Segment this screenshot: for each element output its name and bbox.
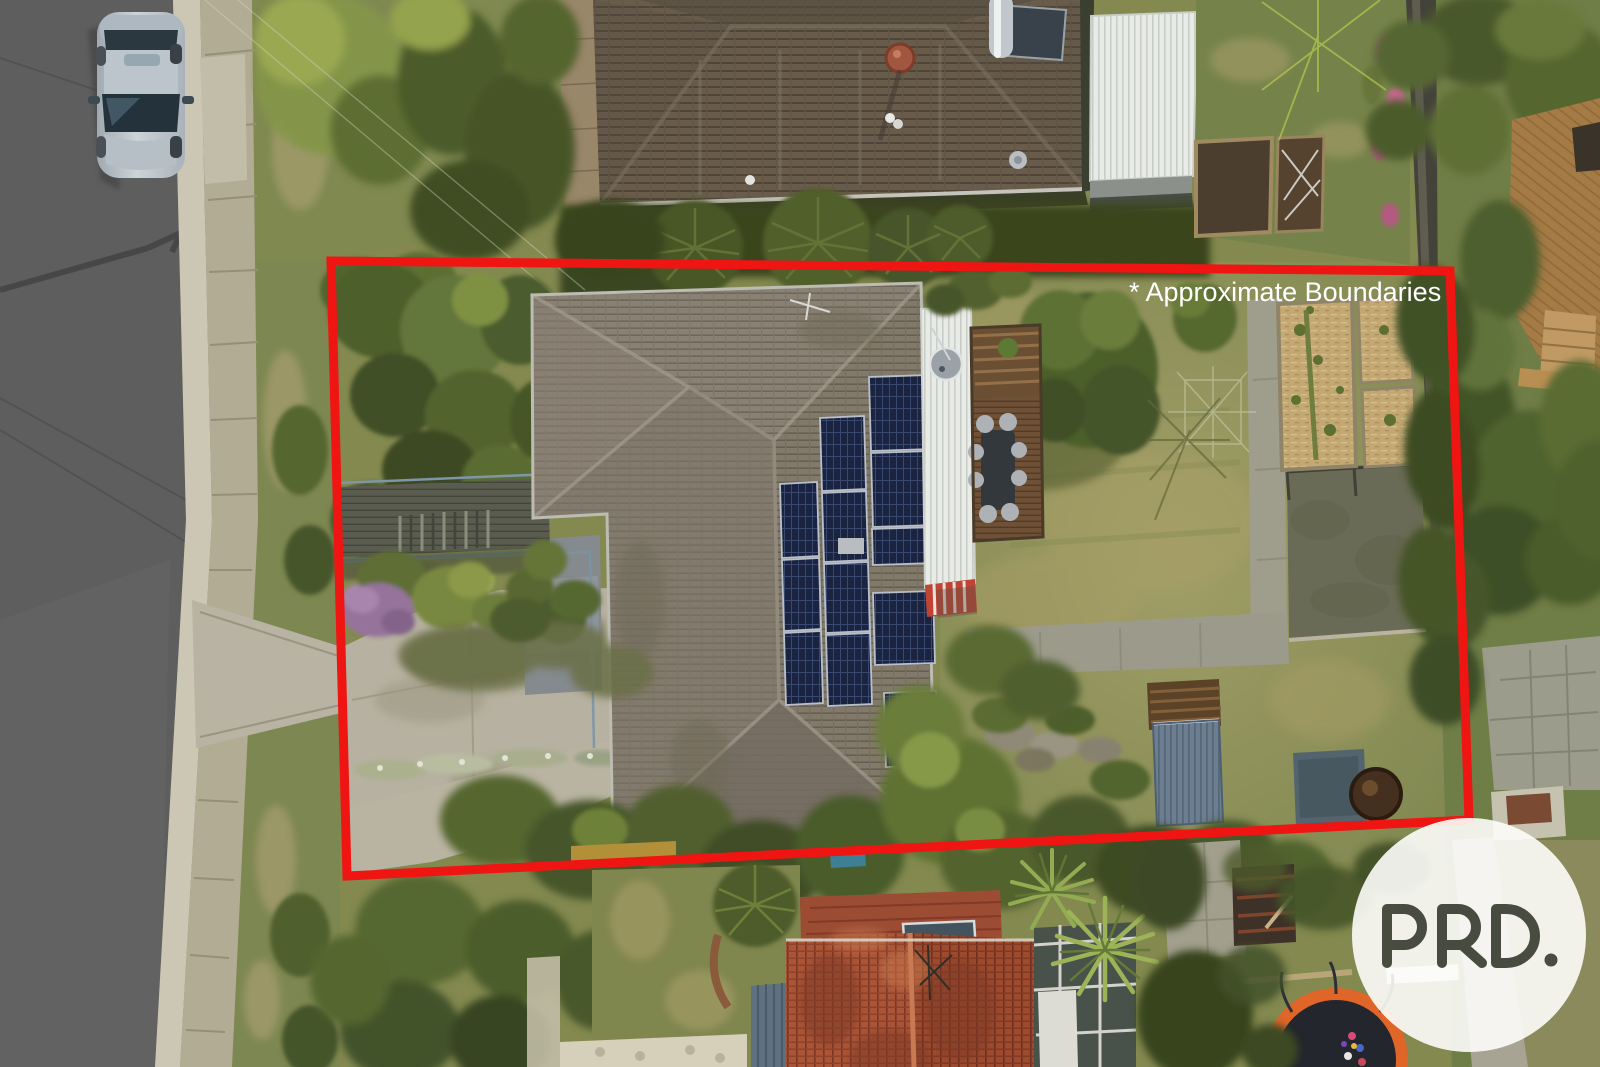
svg-text:* Approximate Boundaries: * Approximate Boundaries [1129,277,1441,307]
